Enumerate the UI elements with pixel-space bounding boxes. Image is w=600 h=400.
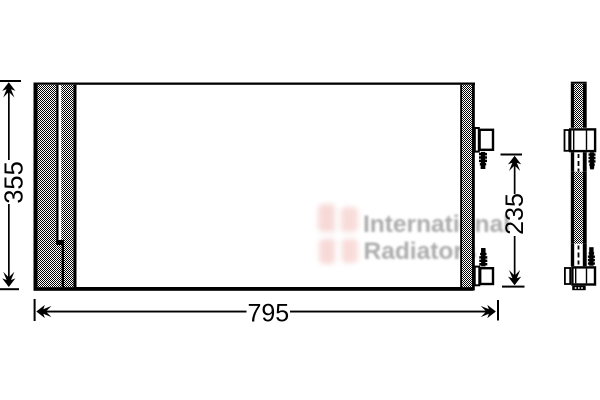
svg-text:235: 235 xyxy=(501,193,529,235)
svg-text:795: 795 xyxy=(247,300,289,328)
svg-text:Radiators: Radiators xyxy=(364,238,477,265)
svg-text:355: 355 xyxy=(1,161,29,204)
svg-text:International: International xyxy=(363,211,510,238)
